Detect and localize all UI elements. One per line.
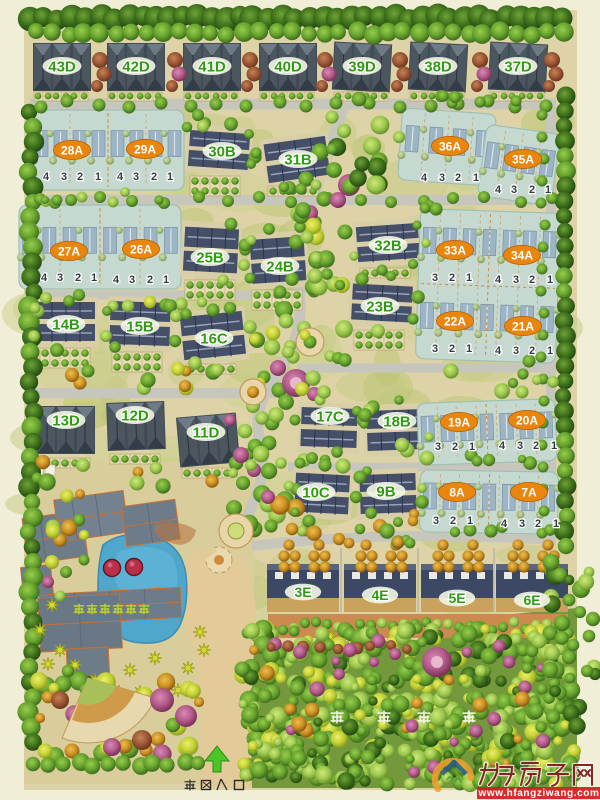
svg-text:3: 3	[432, 272, 438, 284]
svg-text:14B: 14B	[52, 316, 80, 333]
svg-text:2: 2	[529, 274, 535, 286]
svg-text:7A: 7A	[521, 485, 537, 499]
svg-text:43D: 43D	[48, 58, 76, 75]
svg-text:11D: 11D	[193, 424, 220, 441]
svg-text:3: 3	[513, 274, 519, 286]
svg-text:16C: 16C	[200, 330, 228, 347]
svg-text:42D: 42D	[122, 58, 150, 75]
svg-text:1: 1	[466, 343, 472, 355]
svg-text:23B: 23B	[366, 298, 394, 315]
svg-text:29A: 29A	[134, 142, 156, 156]
svg-text:3: 3	[511, 184, 517, 196]
svg-text:3: 3	[435, 441, 441, 453]
svg-text:12D: 12D	[121, 407, 149, 424]
svg-text:8A: 8A	[449, 485, 465, 499]
svg-text:4: 4	[117, 171, 124, 183]
svg-text:10C: 10C	[302, 484, 330, 501]
svg-text:34A: 34A	[511, 248, 533, 262]
svg-text:6E: 6E	[523, 592, 540, 608]
svg-text:2: 2	[449, 343, 455, 355]
svg-text:1: 1	[163, 274, 169, 286]
svg-text:2: 2	[449, 272, 455, 284]
svg-text:4: 4	[501, 518, 508, 530]
svg-text:1: 1	[95, 171, 101, 183]
svg-text:2: 2	[535, 518, 541, 530]
svg-text:37D: 37D	[504, 58, 532, 75]
svg-text:2: 2	[147, 274, 153, 286]
svg-text:2: 2	[151, 171, 157, 183]
svg-text:1: 1	[467, 515, 473, 527]
svg-text:38D: 38D	[424, 58, 452, 75]
svg-text:2: 2	[529, 345, 535, 357]
svg-text:2: 2	[75, 272, 81, 284]
svg-text:39D: 39D	[348, 58, 376, 75]
svg-text:3: 3	[57, 272, 63, 284]
svg-text:3: 3	[133, 171, 139, 183]
svg-text:41D: 41D	[198, 58, 226, 75]
svg-text:3E: 3E	[294, 584, 311, 600]
svg-text:2: 2	[77, 171, 83, 183]
svg-text:2: 2	[450, 515, 456, 527]
svg-text:1: 1	[469, 441, 475, 453]
svg-text:4: 4	[495, 274, 502, 286]
svg-text:31B: 31B	[284, 151, 312, 168]
svg-text:15B: 15B	[126, 318, 154, 335]
svg-text:1: 1	[473, 172, 479, 184]
svg-text:3: 3	[439, 172, 445, 184]
svg-text:www.hfangziwang.com: www.hfangziwang.com	[477, 788, 599, 799]
svg-text:19A: 19A	[448, 415, 470, 429]
svg-text:3: 3	[129, 274, 135, 286]
svg-text:40D: 40D	[274, 58, 302, 75]
svg-text:5E: 5E	[448, 590, 465, 606]
svg-text:1: 1	[466, 272, 472, 284]
svg-text:1: 1	[91, 272, 97, 284]
svg-text:25B: 25B	[196, 249, 224, 266]
svg-text:27A: 27A	[58, 244, 80, 258]
svg-text:24B: 24B	[266, 258, 294, 275]
svg-text:35A: 35A	[512, 152, 534, 166]
svg-text:4: 4	[113, 274, 120, 286]
svg-text:9B: 9B	[376, 483, 395, 500]
svg-text:18B: 18B	[383, 413, 411, 430]
svg-text:4E: 4E	[371, 587, 388, 603]
svg-text:36A: 36A	[439, 139, 461, 153]
svg-text:4: 4	[499, 440, 506, 452]
svg-text:4: 4	[495, 345, 502, 357]
svg-text:2: 2	[533, 440, 539, 452]
svg-text:21A: 21A	[512, 319, 534, 333]
svg-text:3: 3	[513, 345, 519, 357]
svg-text:22A: 22A	[444, 314, 466, 328]
svg-text:3: 3	[517, 440, 523, 452]
svg-text:1: 1	[545, 184, 551, 196]
svg-text:4: 4	[41, 272, 48, 284]
svg-text:1: 1	[167, 171, 173, 183]
svg-text:4: 4	[421, 172, 428, 184]
svg-text:3: 3	[61, 171, 67, 183]
svg-text:30B: 30B	[208, 143, 236, 160]
svg-text:4: 4	[495, 184, 502, 196]
svg-text:1: 1	[553, 518, 559, 530]
svg-text:3: 3	[433, 515, 439, 527]
svg-text:20A: 20A	[516, 413, 538, 427]
svg-text:3: 3	[432, 343, 438, 355]
svg-text:3: 3	[519, 518, 525, 530]
svg-text:17C: 17C	[316, 408, 344, 425]
svg-text:2: 2	[529, 184, 535, 196]
svg-text:2: 2	[452, 441, 458, 453]
svg-text:4: 4	[43, 171, 50, 183]
svg-text:1: 1	[551, 440, 557, 452]
svg-text:26A: 26A	[130, 242, 152, 256]
svg-text:1: 1	[547, 274, 553, 286]
svg-text:28A: 28A	[61, 143, 83, 157]
svg-text:33A: 33A	[444, 243, 466, 257]
svg-text:1: 1	[547, 345, 553, 357]
svg-text:32B: 32B	[374, 237, 402, 254]
svg-text:13D: 13D	[52, 412, 80, 429]
svg-text:2: 2	[455, 172, 461, 184]
